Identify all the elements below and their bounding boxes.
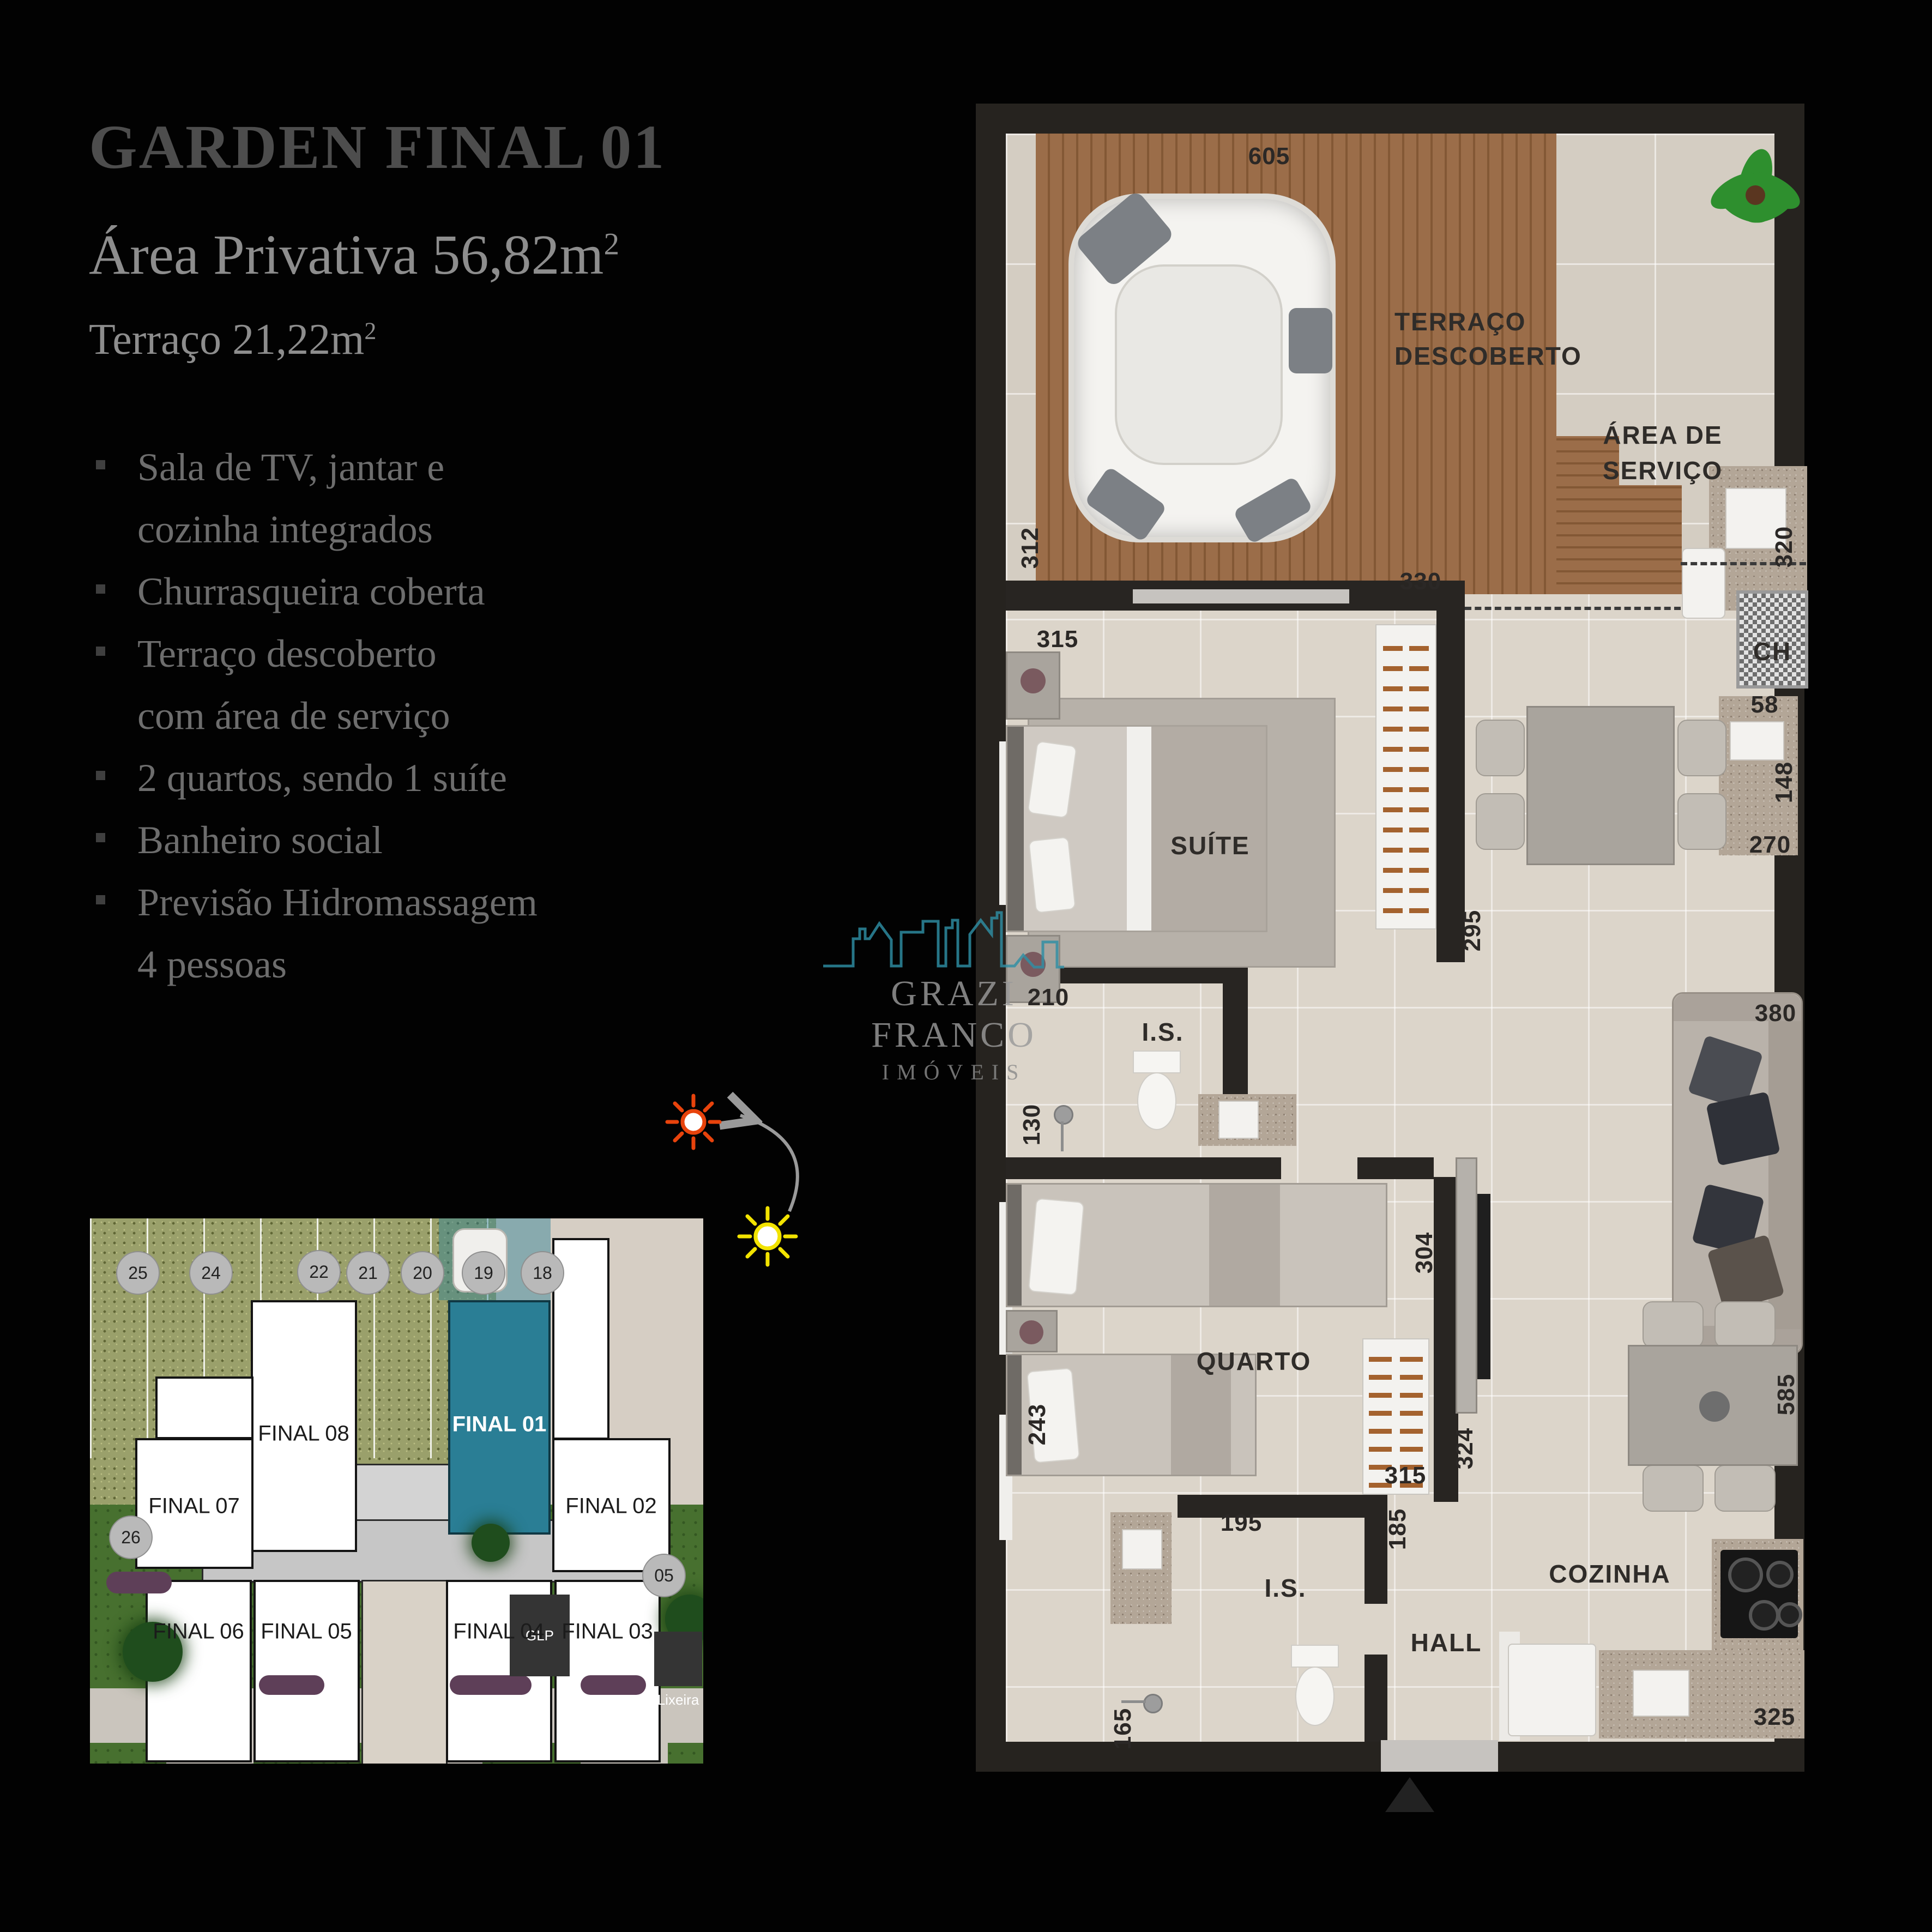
parking-spot-20: 20 <box>401 1251 444 1295</box>
private-area-text: Área Privativa 56,82m2 <box>89 222 619 287</box>
dimension-label: 243 <box>1024 1404 1051 1445</box>
parking-spot-26: 26 <box>109 1516 153 1559</box>
feature-line: com área de serviço <box>137 685 834 747</box>
washing-machine <box>1682 548 1725 619</box>
minimap-unit-label: FINAL 06 <box>153 1620 244 1644</box>
dimension-label: 312 <box>1017 527 1044 569</box>
suite-wardrobe <box>1375 624 1436 929</box>
shower-head <box>1143 1694 1163 1713</box>
watermark-name: GRAZI FRANCO <box>823 973 1085 1056</box>
dimension-label: 195 <box>1221 1510 1262 1537</box>
feature-list: Sala de TV, jantar ecozinha integradosCh… <box>93 436 834 995</box>
feature-line: Churrasqueira coberta <box>137 560 834 623</box>
sunset-sun-icon <box>667 1096 720 1148</box>
room-label: TERRAÇO <box>1394 307 1526 336</box>
feature-line: 4 pessoas <box>137 933 834 995</box>
parking-spot-25: 25 <box>116 1251 160 1295</box>
minimap-unit-label: FINAL 01 <box>452 1412 547 1437</box>
hot-tub <box>1068 194 1336 542</box>
room-label: CH <box>1753 637 1791 666</box>
feature-line: Banheiro social <box>137 809 834 871</box>
dimension-label: 315 <box>1385 1462 1426 1489</box>
stove <box>1720 1550 1798 1638</box>
minimap-lixeira-box <box>654 1632 702 1686</box>
minimap-unit-label: FINAL 07 <box>148 1494 239 1519</box>
floor-plan: 6053123303203155814827029538021013030424… <box>976 104 1804 1772</box>
suite-toilet <box>1133 1050 1181 1073</box>
dimension-label: 185 <box>1384 1508 1411 1550</box>
room-label: SERVIÇO <box>1603 456 1723 485</box>
social-toilet <box>1291 1645 1339 1668</box>
minimap-unit-final07-tower[interactable] <box>155 1376 253 1439</box>
site-plan-minimap: GLP Lixeira FINAL 08FINAL 01FINAL 07FINA… <box>90 1218 703 1764</box>
sunrise-sun-icon <box>739 1208 796 1265</box>
feature-line: Sala de TV, jantar e <box>137 436 834 498</box>
room-label: QUARTO <box>1197 1347 1312 1376</box>
parking-spot-21: 21 <box>346 1251 390 1295</box>
entrance-arrow <box>1385 1777 1434 1812</box>
dimension-label: 585 <box>1773 1374 1800 1415</box>
feature-item-3: 2 quartos, sendo 1 suíte <box>93 747 834 809</box>
quarto-nightstand <box>1006 1310 1058 1353</box>
room-label: COZINHA <box>1549 1559 1671 1589</box>
room-label: I.S. <box>1264 1573 1306 1603</box>
minimap-unit-label: FINAL 08 <box>258 1422 349 1446</box>
parking-spot-22: 22 <box>297 1250 341 1294</box>
minimap-unit-label: FINAL 05 <box>261 1620 352 1644</box>
feature-line: Terraço descoberto <box>137 623 834 685</box>
parking-spot-18: 18 <box>521 1251 564 1295</box>
room-label: DESCOBERTO <box>1394 341 1582 371</box>
terrace-area-text: Terraço 21,22m2 <box>89 315 376 365</box>
feature-item-2: Terraço descobertocom área de serviço <box>93 623 834 747</box>
sun-arc <box>740 1115 798 1211</box>
minimap-unit-label: FINAL 02 <box>565 1494 656 1519</box>
minimap-lixeira-label: Lixeira <box>657 1692 699 1708</box>
agency-watermark: GRAZI FRANCO IMÓVEIS <box>823 905 1085 1085</box>
suite-bath-sink <box>1218 1101 1259 1139</box>
dimension-label: 304 <box>1411 1232 1438 1273</box>
dimension-label: 605 <box>1248 143 1290 170</box>
social-bath-sink <box>1122 1529 1162 1569</box>
dimension-label: 315 <box>1037 626 1078 653</box>
feature-item-1: Churrasqueira coberta <box>93 560 834 623</box>
quarto-bed-1 <box>1006 1183 1387 1307</box>
shower-head <box>1054 1105 1073 1125</box>
dimension-label: 165 <box>1109 1708 1137 1749</box>
minimap-unit-label: FINAL 04 <box>453 1620 544 1644</box>
watermark-sub: IMÓVEIS <box>823 1059 1085 1085</box>
dimension-label: 148 <box>1771 762 1798 803</box>
feature-line: 2 quartos, sendo 1 suíte <box>137 747 834 809</box>
minimap-core <box>361 1580 448 1764</box>
dimension-label: 58 <box>1751 691 1779 719</box>
dimension-label: 130 <box>1018 1104 1046 1145</box>
tv <box>1477 1194 1490 1379</box>
suite-bed <box>1006 725 1267 932</box>
dining-table <box>1526 706 1675 865</box>
parking-spot-19: 19 <box>462 1251 505 1295</box>
dimension-label: 325 <box>1754 1704 1795 1731</box>
tv-panel <box>1456 1157 1477 1414</box>
feature-item-5: Previsão Hidromassagem4 pessoas <box>93 871 834 995</box>
dimension-label: 324 <box>1451 1428 1478 1469</box>
plant-icon <box>1704 147 1807 245</box>
room-label: ÁREA DE <box>1603 420 1722 450</box>
dimension-label: 295 <box>1459 910 1486 951</box>
room-label: SUÍTE <box>1170 831 1249 860</box>
fridge <box>1508 1644 1596 1736</box>
room-label: I.S. <box>1142 1017 1184 1047</box>
dimension-label: 380 <box>1755 1000 1796 1027</box>
feature-line: Previsão Hidromassagem <box>137 871 834 933</box>
parking-spot-24: 24 <box>189 1251 233 1295</box>
kitchen-sink <box>1633 1670 1689 1717</box>
sofa <box>1672 992 1803 1355</box>
balcony-sink <box>1730 721 1784 760</box>
feature-item-0: Sala de TV, jantar ecozinha integrados <box>93 436 834 560</box>
parking-spot-05: 05 <box>642 1554 686 1597</box>
dimension-label: 270 <box>1749 831 1791 859</box>
page: GARDEN FINAL 01 Área Privativa 56,82m2 T… <box>0 0 1932 1932</box>
minimap-unit-label: FINAL 03 <box>562 1620 653 1644</box>
room-label: HALL <box>1411 1628 1482 1657</box>
minimap-unit-final05[interactable] <box>253 1580 360 1762</box>
feature-item-4: Banheiro social <box>93 809 834 871</box>
dimension-label: 320 <box>1771 526 1798 567</box>
feature-line: cozinha integrados <box>137 498 834 560</box>
dimension-label: 330 <box>1400 568 1441 595</box>
suite-nightstand <box>1006 651 1060 720</box>
minimap-unit-final03[interactable] <box>554 1580 661 1762</box>
page-title: GARDEN FINAL 01 <box>89 111 666 183</box>
